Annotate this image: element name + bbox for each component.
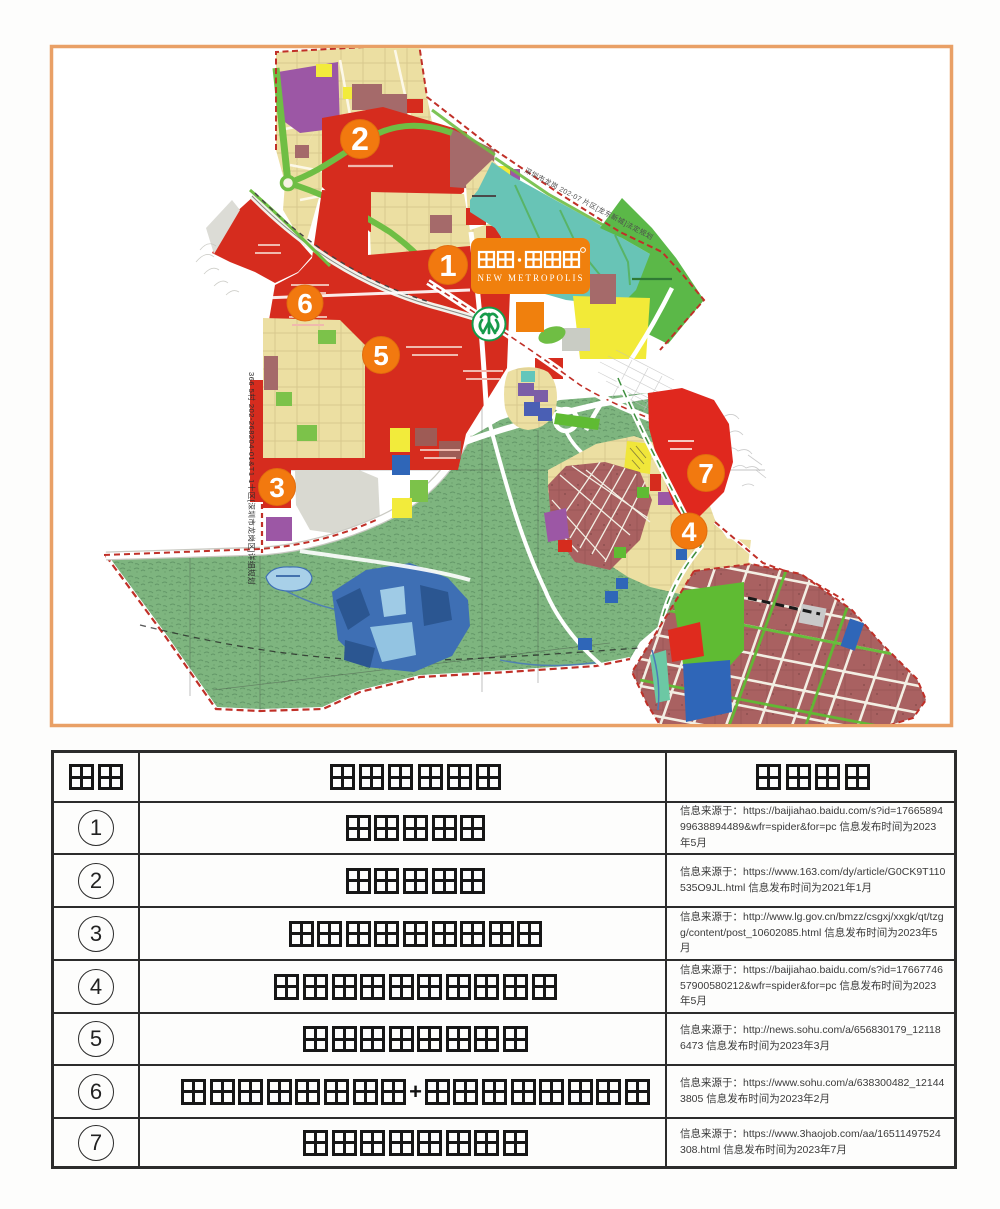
svg-text:366 5村 202-268204-01&T1 1十区[深圳: 366 5村 202-268204-01&T1 1十区[深圳市龙岗区]详细规划 <box>247 372 257 585</box>
svg-text:2: 2 <box>351 121 369 157</box>
svg-text:1: 1 <box>439 248 456 283</box>
svg-text:7: 7 <box>698 458 714 489</box>
svg-text:3: 3 <box>269 472 285 503</box>
svg-text:NEW METROPOLIS: NEW METROPOLIS <box>477 273 584 283</box>
svg-text:6: 6 <box>297 288 313 319</box>
svg-text:4: 4 <box>681 517 696 547</box>
svg-text:5: 5 <box>373 340 389 371</box>
